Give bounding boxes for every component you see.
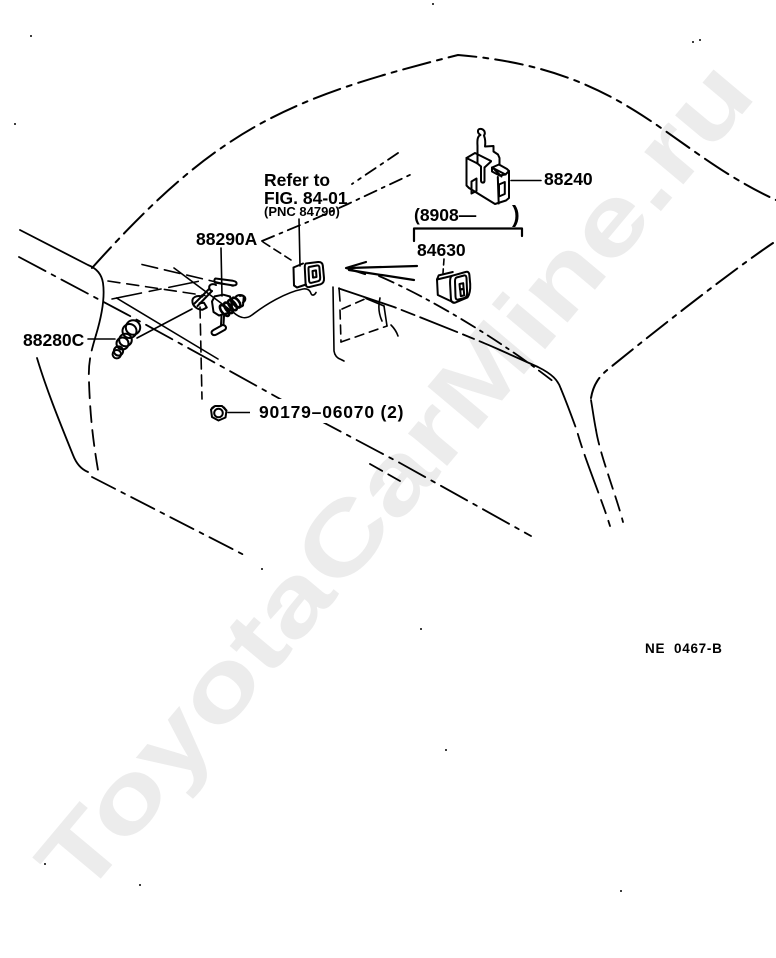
- svg-text:88240: 88240: [544, 169, 593, 189]
- svg-text:90179–06070 (2): 90179–06070 (2): [259, 402, 404, 422]
- svg-text:88290A: 88290A: [196, 229, 258, 249]
- svg-text:): ): [512, 201, 520, 227]
- svg-text:NE 0467-B: NE 0467-B: [645, 641, 723, 656]
- svg-text:84630: 84630: [417, 240, 466, 260]
- svg-text:Refer to: Refer to: [264, 170, 330, 190]
- svg-text:88280C: 88280C: [23, 330, 85, 350]
- svg-text:(8908—: (8908—: [414, 205, 477, 225]
- svg-text:(PNC 84790): (PNC 84790): [264, 204, 340, 219]
